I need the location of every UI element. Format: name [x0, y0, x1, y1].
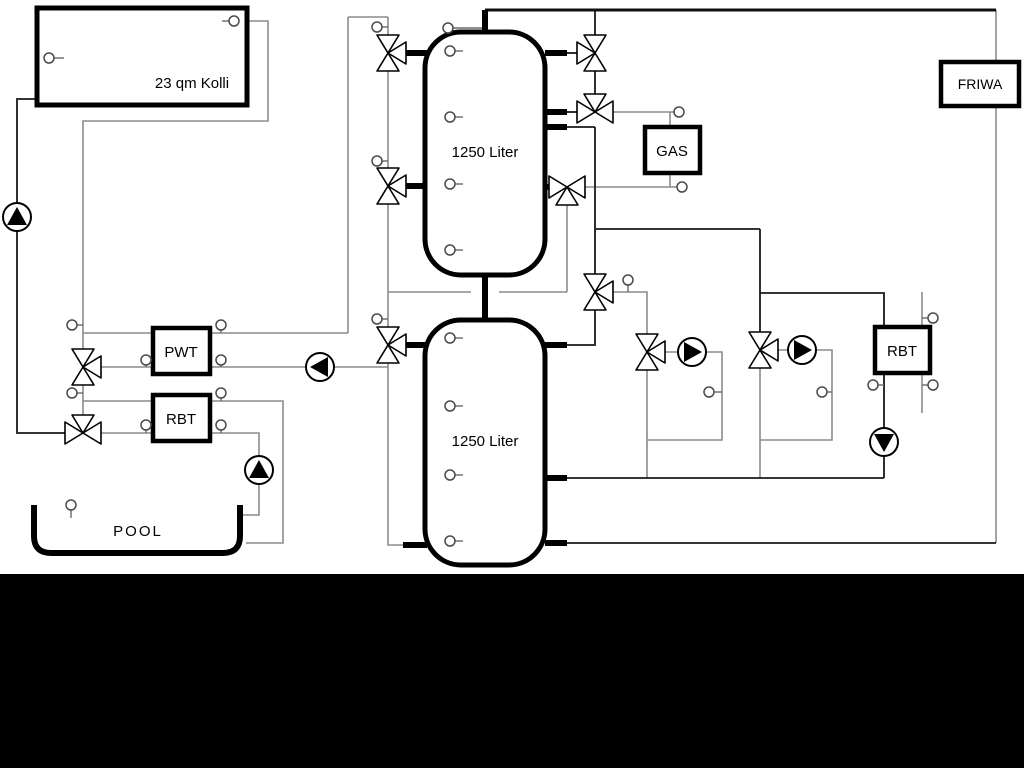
- heating-pump-1-icon: [678, 338, 706, 366]
- buffer-tank-bottom-label: 1250 Liter: [452, 433, 519, 450]
- three-way-valve-icon: [377, 168, 406, 204]
- sensor-icon: [817, 387, 827, 397]
- sensor-icon: [674, 107, 684, 117]
- sensor-icon: [445, 401, 455, 411]
- rbt-left-label: RBT: [166, 411, 196, 428]
- pool-label: POOL: [113, 523, 163, 540]
- rbt-right-label: RBT: [887, 343, 917, 360]
- schematic-screenshot: 23 qm Kolli PWT RBT GAS FRIWA RBT 1250 L…: [0, 0, 1024, 768]
- pipe-collector-return-pump: [17, 99, 65, 433]
- three-way-valve-icon: [636, 334, 665, 370]
- buffer-tank-top-label: 1250 Liter: [452, 144, 519, 161]
- sensor-icon: [445, 470, 455, 480]
- sensor-icon: [141, 420, 151, 430]
- sensor-icon: [445, 112, 455, 122]
- pipe-mix-valve-branch: [613, 292, 647, 334]
- rbt-pump-icon: [870, 428, 898, 456]
- sensor-icon: [216, 388, 226, 398]
- pwt-label: PWT: [164, 344, 197, 361]
- three-way-valve-icon: [65, 415, 101, 444]
- sensor-icon: [216, 355, 226, 365]
- pipe-heating-branch-2: [760, 350, 832, 478]
- pipe-heating-branch-1: [647, 352, 722, 478]
- sensor-icon: [44, 53, 54, 63]
- sensor-icon: [216, 420, 226, 430]
- three-way-valve-icon: [584, 274, 613, 310]
- three-way-valve-icon: [749, 332, 778, 368]
- friwa-label: FRIWA: [958, 76, 1003, 92]
- sensor-icon: [66, 500, 76, 510]
- sensor-icon: [928, 313, 938, 323]
- sensor-icon: [704, 387, 714, 397]
- sensor-icon: [868, 380, 878, 390]
- sensor-icon: [141, 355, 151, 365]
- three-way-valve-icon: [72, 349, 101, 385]
- three-way-valve-icon: [549, 176, 585, 205]
- sensor-icon: [67, 388, 77, 398]
- solar-collector-label: 23 qm Kolli: [155, 75, 229, 92]
- sensor-icon: [445, 46, 455, 56]
- sensor-icon: [443, 23, 453, 33]
- sensor-icon: [372, 22, 382, 32]
- sensor-icon: [216, 320, 226, 330]
- heating-schematic-diagram: 23 qm Kolli PWT RBT GAS FRIWA RBT 1250 L…: [0, 0, 1024, 768]
- sensor-icon: [372, 156, 382, 166]
- sensor-icon: [445, 245, 455, 255]
- gas-label: GAS: [656, 143, 688, 160]
- three-way-valve-icon: [377, 35, 406, 71]
- three-way-valve-icon: [377, 327, 406, 363]
- sensor-icon: [445, 333, 455, 343]
- sensor-icon: [623, 275, 633, 285]
- heating-pump-2-icon: [788, 336, 816, 364]
- sensor-icon: [229, 16, 239, 26]
- solar-pump-icon: [3, 203, 31, 231]
- pwt-pump-icon: [306, 353, 334, 381]
- pipe-upper-distribution: [595, 229, 760, 332]
- pipe-left-valve-column: [388, 17, 403, 545]
- sensor-icon: [928, 380, 938, 390]
- three-way-valve-icon: [577, 94, 613, 123]
- three-way-valve-icon: [577, 35, 606, 71]
- pool-basin: POOL: [34, 505, 240, 553]
- sensor-icon: [445, 536, 455, 546]
- pipe-to-rbt-right: [760, 293, 884, 327]
- sensor-icon: [677, 182, 687, 192]
- pool-pump-icon: [245, 456, 273, 484]
- footer-black-bar: [0, 574, 1024, 768]
- sensor-icon: [67, 320, 77, 330]
- sensor-icon: [372, 314, 382, 324]
- sensor-icon: [445, 179, 455, 189]
